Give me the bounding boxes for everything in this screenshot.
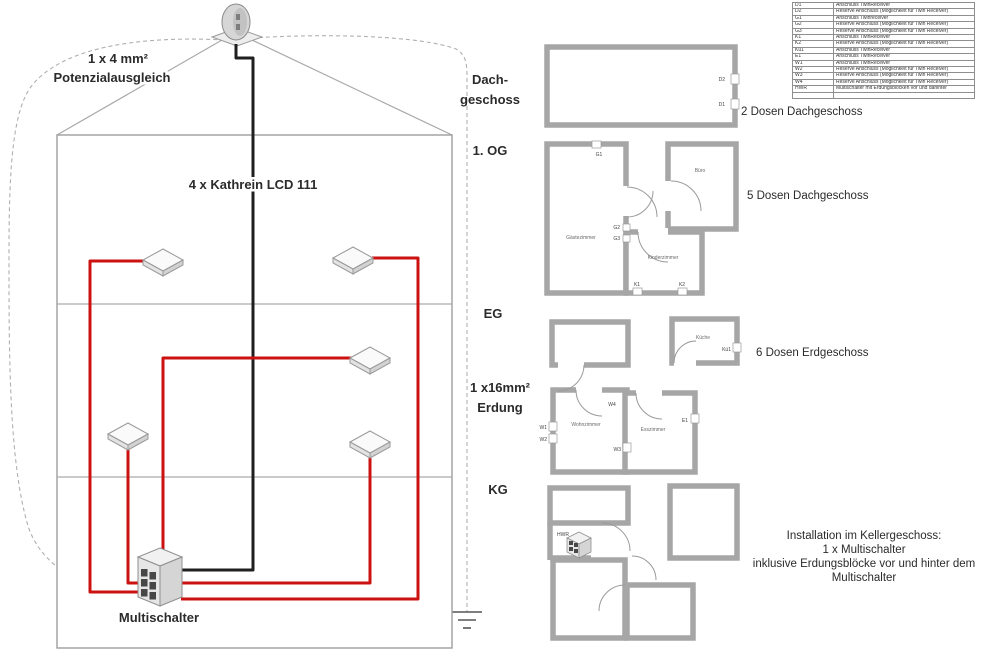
bonding-label-line2: Potenzialausgleich xyxy=(53,70,170,85)
door-arc xyxy=(632,556,656,580)
floor-plan-eg: Küche Kü1 W4 W3 W1 W2 E1 Wohnzimmer Essz… xyxy=(536,313,742,477)
caption-erdung: 1 x16mm²Erdung xyxy=(455,378,545,417)
caption-kg: KG xyxy=(460,480,536,500)
socket-label-d2: D2 xyxy=(719,77,726,83)
multiswitch-label: Multischalter xyxy=(119,610,199,625)
socket-label-k2: K2 xyxy=(679,282,685,288)
socket-notch xyxy=(733,343,741,352)
socket-notch xyxy=(549,434,557,443)
socket-label-g2: G2 xyxy=(613,225,620,231)
note-og: 5 Dosen Dachgeschoss xyxy=(747,190,868,202)
room-label-kueche: Küche xyxy=(696,335,710,341)
socket-label-ku1: Kü1 xyxy=(722,347,731,353)
earth-ground-icon xyxy=(452,612,482,628)
satellite-dish-icon xyxy=(212,4,262,46)
socket-label-w1: W1 xyxy=(540,425,548,431)
caption-eg: EG xyxy=(455,304,531,324)
socket-notch xyxy=(678,288,687,295)
legend-table: D1Anschluss TwinReceiverD2Reserve Anschl… xyxy=(792,2,975,99)
floor-plan-kg: HWR xyxy=(536,478,742,646)
room-label-kinderzimmer: Kinderzimmer xyxy=(648,255,679,261)
socket-notch xyxy=(633,288,642,295)
socket-label-g1: G1 xyxy=(596,152,603,158)
socket-notch xyxy=(691,414,699,423)
floor-plan-og: G1 G2 G3 K1 K2 Gästezimmer Büro Kinderzi… xyxy=(543,139,739,299)
cable-type-label: 4 x Kathrein LCD 111 xyxy=(189,177,318,192)
legend-row xyxy=(793,92,975,98)
socket-notch xyxy=(731,99,739,109)
socket-notch xyxy=(623,224,630,231)
legend-table-body: D1Anschluss TwinReceiverD2Reserve Anschl… xyxy=(793,3,975,99)
socket-notch xyxy=(549,422,557,431)
satellite-installation-diagram: 1 x 4 mm² Potenzialausgleich 4 x Kathrei… xyxy=(0,0,1000,650)
caption-og: 1. OG xyxy=(452,141,528,161)
note-dachgeschoss: 2 Dosen Dachgeschoss xyxy=(741,106,862,118)
multiswitch-icon-small xyxy=(567,532,591,558)
bonding-label-line1: 1 x 4 mm² xyxy=(88,51,149,66)
socket-notch xyxy=(592,141,601,148)
note-kg: Installation im Kellergeschoss: 1 x Mult… xyxy=(742,529,986,585)
multiswitch-icon xyxy=(138,548,182,606)
room-label-buero: Büro xyxy=(695,168,706,174)
room-label-wohnzimmer: Wohnzimmer xyxy=(571,422,601,428)
caption-dachgeschoss: Dach-geschoss xyxy=(452,70,528,109)
socket-label-g3: G3 xyxy=(613,236,620,242)
socket-label-k1: K1 xyxy=(634,282,640,288)
roof-right-line xyxy=(252,40,452,135)
socket-label-e1: E1 xyxy=(682,418,688,424)
socket-label-w2: W2 xyxy=(540,437,548,443)
socket-notch xyxy=(623,443,631,452)
socket-notch xyxy=(623,235,630,242)
room-label-esszimmer: Esszimmer xyxy=(641,427,666,433)
room-label-hwr: HWR xyxy=(557,532,569,538)
socket-notch xyxy=(731,74,739,84)
note-eg: 6 Dosen Erdgeschoss xyxy=(756,347,869,359)
room-label-gaestezimmer: Gästezimmer xyxy=(566,235,596,241)
door-arc xyxy=(602,523,630,551)
floor-plan-dachgeschoss: D2 D1 xyxy=(543,43,739,129)
socket-label-w4: W4 xyxy=(608,402,616,408)
socket-label-d1: D1 xyxy=(719,102,726,108)
socket-label-w3: W3 xyxy=(614,447,622,453)
